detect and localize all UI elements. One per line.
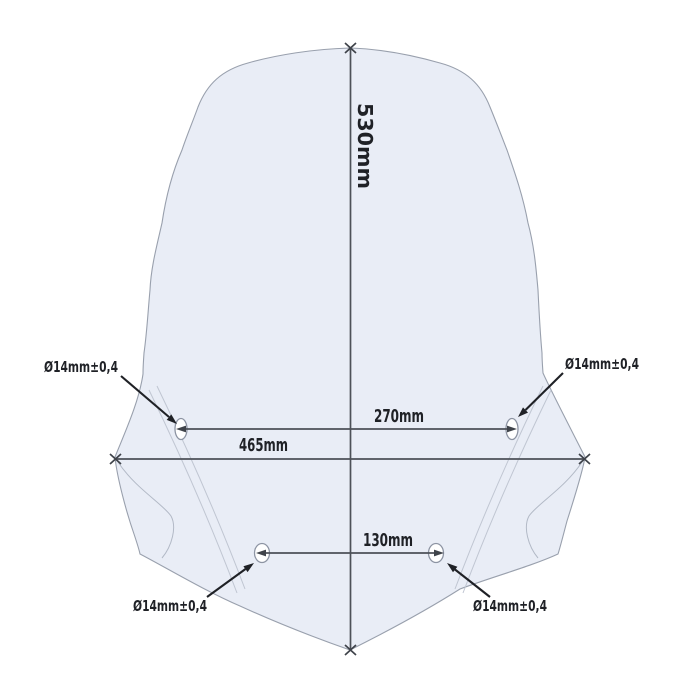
hole-callout-label-lower-left: Ø14mm±0,4 (133, 597, 207, 615)
hole-callout-label-upper-left: Ø14mm±0,4 (44, 358, 118, 376)
upper-hole-spacing-label: 270mm (374, 406, 424, 427)
hole-callout-label-lower-right: Ø14mm±0,4 (473, 597, 547, 615)
overall-width-label: 465mm (239, 435, 288, 456)
drawing-canvas: 530mm 270mm 465mm 130mm Ø14mm±0,4 Ø14mm±… (0, 0, 700, 700)
lower-hole-spacing-label: 130mm (363, 530, 413, 551)
height-dimension-label: 530mm (353, 103, 377, 189)
windscreen-technical-drawing: 530mm 270mm 465mm 130mm Ø14mm±0,4 Ø14mm±… (0, 0, 700, 700)
hole-callout-label-upper-right: Ø14mm±0,4 (565, 355, 639, 373)
